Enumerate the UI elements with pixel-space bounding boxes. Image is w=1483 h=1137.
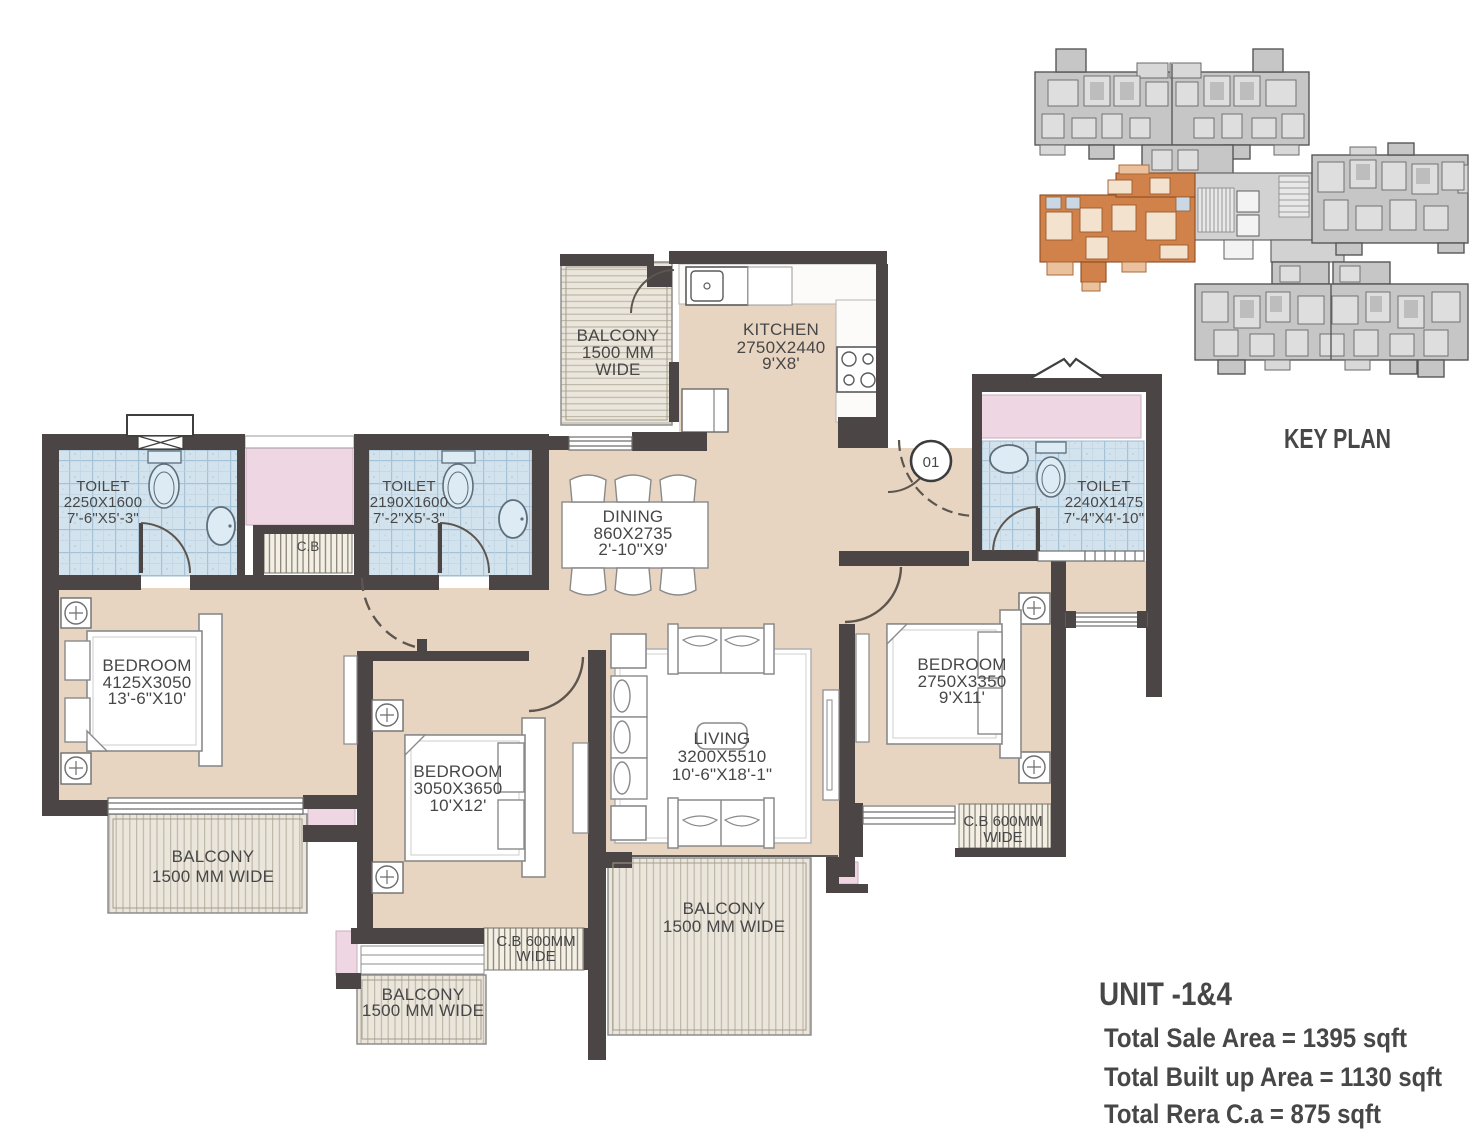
svg-text:1500 MM WIDE: 1500 MM WIDE	[152, 867, 274, 886]
svg-text:1500 MM WIDE: 1500 MM WIDE	[362, 1001, 484, 1020]
svg-text:7'-6"X5'-3": 7'-6"X5'-3"	[67, 510, 139, 527]
svg-text:2190X1600: 2190X1600	[370, 494, 449, 511]
svg-text:LIVING: LIVING	[694, 729, 751, 748]
svg-text:Total Sale Area = 1395 sqft: Total Sale Area = 1395 sqft	[1104, 1023, 1407, 1053]
svg-text:C.B: C.B	[297, 539, 320, 554]
svg-text:10'X12': 10'X12'	[429, 796, 486, 815]
svg-text:TOILET: TOILET	[382, 478, 435, 495]
svg-text:01: 01	[923, 454, 940, 471]
svg-text:7'-2"X5'-3": 7'-2"X5'-3"	[373, 510, 445, 527]
svg-text:Total Rera C.a = 875 sqft: Total Rera C.a = 875 sqft	[1104, 1099, 1381, 1129]
svg-text:TOILET: TOILET	[1077, 478, 1130, 495]
svg-text:C.B 600MM: C.B 600MM	[963, 813, 1042, 830]
svg-text:WIDE: WIDE	[983, 829, 1022, 846]
svg-text:7'-4"X4'-10": 7'-4"X4'-10"	[1064, 510, 1144, 527]
svg-text:2'-10"X9': 2'-10"X9'	[598, 540, 667, 559]
svg-text:1500 MM WIDE: 1500 MM WIDE	[663, 917, 785, 936]
svg-text:Total Built up Area = 1130 sqf: Total Built up Area = 1130 sqft	[1104, 1062, 1442, 1092]
svg-text:10'-6"X18'-1": 10'-6"X18'-1"	[672, 765, 773, 784]
svg-text:3200X5510: 3200X5510	[678, 747, 767, 766]
svg-text:2240X1475: 2240X1475	[1065, 494, 1144, 511]
svg-text:WIDE: WIDE	[516, 948, 555, 965]
svg-text:9'X11': 9'X11'	[939, 688, 985, 707]
svg-text:UNIT -1&4: UNIT -1&4	[1099, 976, 1232, 1012]
svg-text:2250X1600: 2250X1600	[64, 494, 143, 511]
svg-text:BALCONY: BALCONY	[172, 847, 255, 866]
svg-text:BALCONY: BALCONY	[683, 899, 766, 918]
svg-text:KITCHEN: KITCHEN	[743, 320, 819, 339]
svg-text:KEY PLAN: KEY PLAN	[1284, 423, 1391, 454]
svg-text:9'X8': 9'X8'	[762, 354, 800, 373]
svg-text:TOILET: TOILET	[76, 478, 129, 495]
svg-text:WIDE: WIDE	[595, 360, 640, 379]
svg-text:13'-6"X10': 13'-6"X10'	[108, 689, 187, 708]
